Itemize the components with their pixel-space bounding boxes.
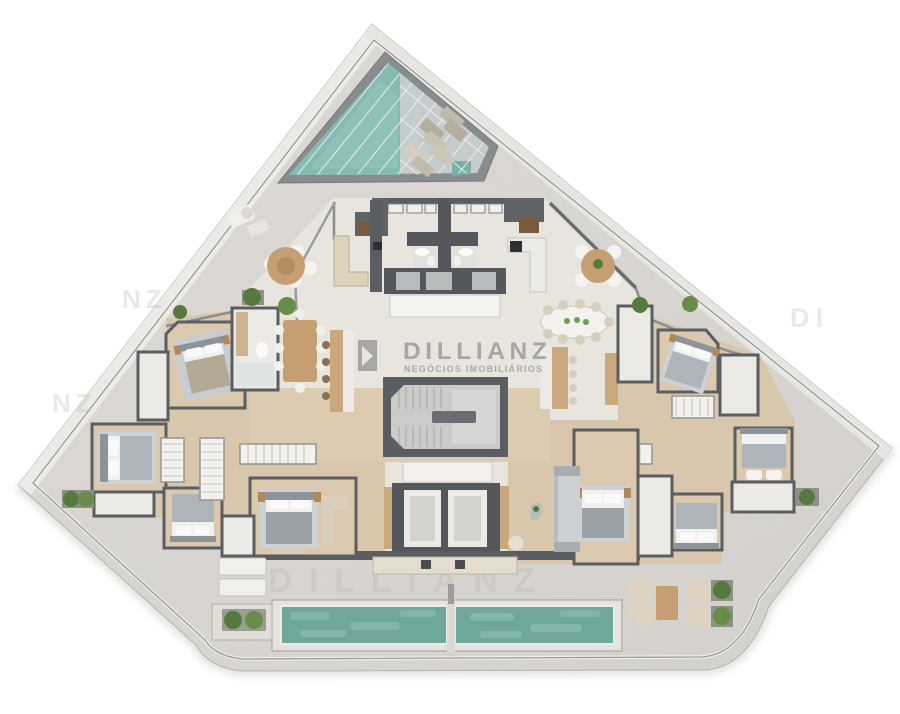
svg-text:NEGÓCIOS IMOBILIÁRIOS: NEGÓCIOS IMOBILIÁRIOS [404, 363, 543, 374]
svg-text:DILLIANZ: DILLIANZ [403, 338, 551, 365]
svg-text:NZ: NZ [52, 388, 97, 418]
svg-text:DI: DI [790, 303, 829, 333]
svg-text:NZ: NZ [122, 284, 167, 314]
